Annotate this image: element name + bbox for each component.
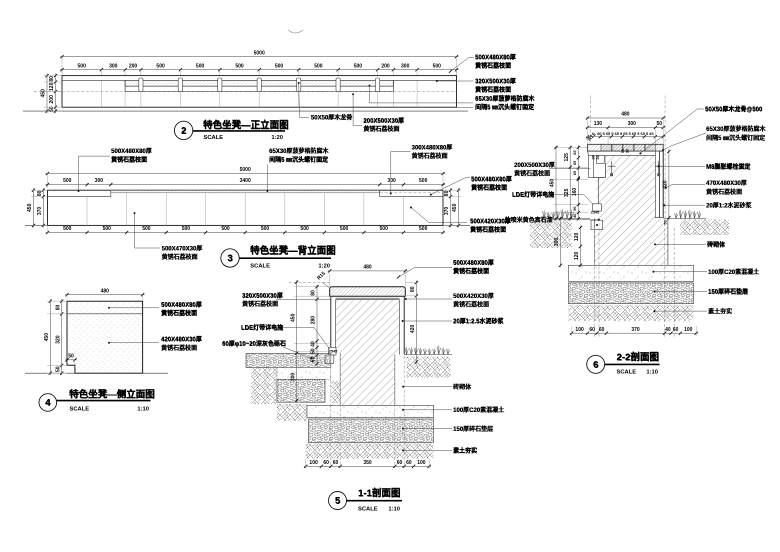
- svg-text:素土夯实: 素土夯实: [452, 447, 477, 455]
- svg-text:1-1剖面图: 1-1剖面图: [358, 488, 400, 500]
- svg-text:150厚碎石垫层: 150厚碎石垫层: [708, 288, 748, 296]
- svg-text:500X480X80厚: 500X480X80厚: [475, 54, 516, 62]
- svg-text:500X480X80厚: 500X480X80厚: [111, 147, 152, 155]
- svg-text:160: 160: [572, 188, 578, 197]
- svg-text:470X480X30厚: 470X480X30厚: [706, 179, 747, 187]
- svg-text:2545: 2545: [591, 210, 600, 215]
- svg-text:80 5 65 5 65 5 65 5 65 5 65 5: 80 5 65 5 65 5 65 5 65 5 65 5 45: [597, 131, 654, 136]
- svg-text:SCALE: SCALE: [358, 506, 378, 512]
- svg-text:500X420X30厚: 500X420X30厚: [453, 292, 494, 300]
- svg-text:200: 200: [129, 63, 138, 69]
- svg-text:80: 80: [37, 190, 43, 196]
- svg-text:500: 500: [433, 63, 442, 69]
- svg-text:特色坐凳—背立面图: 特色坐凳—背立面图: [250, 245, 336, 257]
- svg-text:1:10: 1:10: [388, 506, 400, 512]
- svg-text:50: 50: [55, 366, 61, 372]
- svg-text:100厚C20素混凝土: 100厚C20素混凝土: [708, 268, 759, 276]
- svg-text:1:10: 1:10: [646, 370, 658, 376]
- svg-text:300: 300: [109, 63, 118, 69]
- svg-text:40: 40: [572, 214, 577, 218]
- svg-text:500X470X30厚: 500X470X30厚: [162, 245, 203, 253]
- svg-text:350: 350: [363, 460, 372, 466]
- svg-text:320X500X30厚: 320X500X30厚: [242, 292, 283, 300]
- svg-text:500: 500: [314, 63, 323, 69]
- svg-text:450: 450: [27, 203, 33, 212]
- svg-text:SCALE: SCALE: [70, 406, 90, 412]
- svg-text:100: 100: [575, 327, 584, 333]
- svg-text:60: 60: [323, 460, 329, 466]
- svg-text:SCALE: SCALE: [250, 263, 270, 269]
- svg-text:间隔5 ㎜沉头螺钉固定: 间隔5 ㎜沉头螺钉固定: [475, 104, 534, 112]
- svg-text:65X30厚菠萝格防腐木: 65X30厚菠萝格防腐木: [475, 95, 535, 103]
- svg-text:320X500X30厚: 320X500X30厚: [475, 78, 516, 86]
- svg-text:20厚1:2.5水泥砂浆: 20厚1:2.5水泥砂浆: [453, 317, 504, 325]
- svg-text:500: 500: [419, 178, 428, 184]
- svg-text:50: 50: [311, 348, 317, 354]
- svg-text:500: 500: [419, 226, 428, 232]
- svg-text:130: 130: [594, 121, 603, 127]
- svg-text:1:10: 1:10: [137, 406, 149, 412]
- svg-text:500: 500: [156, 63, 165, 69]
- svg-text:450: 450: [44, 333, 50, 342]
- svg-text:黄锈石荔枝面: 黄锈石荔枝面: [161, 344, 197, 352]
- svg-text:外喷米黄色真石漆: 外喷米黄色真石漆: [504, 216, 553, 224]
- svg-text:50X50厚木龙骨: 50X50厚木龙骨: [311, 114, 352, 122]
- svg-text:500: 500: [275, 63, 284, 69]
- svg-text:480: 480: [363, 265, 372, 271]
- svg-text:黄锈石荔枝面: 黄锈石荔枝面: [453, 301, 489, 309]
- svg-text:325: 325: [564, 188, 570, 197]
- svg-text:黄锈石荔枝面: 黄锈石荔枝面: [475, 86, 511, 94]
- svg-text:200: 200: [49, 95, 55, 104]
- svg-text:特色坐凳—侧立面图: 特色坐凳—侧立面图: [70, 389, 156, 401]
- svg-text:LDE灯带详电施: LDE灯带详电施: [512, 191, 554, 199]
- svg-text:450: 450: [290, 313, 296, 322]
- svg-text:4: 4: [46, 398, 52, 409]
- svg-text:500: 500: [103, 226, 112, 232]
- svg-text:60: 60: [311, 356, 317, 362]
- svg-text:5000: 5000: [240, 167, 251, 173]
- svg-text:500: 500: [78, 63, 87, 69]
- svg-text:500: 500: [340, 226, 349, 232]
- svg-text:5000: 5000: [254, 50, 265, 56]
- svg-text:黄锈石荔枝面: 黄锈石荔枝面: [364, 125, 400, 133]
- svg-text:60: 60: [406, 460, 412, 466]
- svg-text:500: 500: [354, 63, 363, 69]
- svg-text:500: 500: [300, 226, 309, 232]
- svg-text:450: 450: [452, 203, 458, 212]
- svg-text:125: 125: [564, 153, 570, 162]
- svg-text:500X480X80厚: 500X480X80厚: [453, 259, 494, 267]
- svg-text:120: 120: [49, 82, 55, 91]
- svg-text:30: 30: [625, 149, 630, 153]
- svg-text:M8膨胀螺栓固定: M8膨胀螺栓固定: [706, 163, 750, 171]
- svg-text:50: 50: [572, 206, 577, 210]
- svg-text:黄锈石荔枝面: 黄锈石荔枝面: [475, 62, 511, 70]
- svg-text:3400: 3400: [240, 178, 251, 184]
- svg-text:50X50厚木龙骨@500: 50X50厚木龙骨@500: [705, 106, 763, 114]
- svg-text:黄锈石荔枝面: 黄锈石荔枝面: [242, 300, 278, 308]
- svg-text:100: 100: [417, 460, 426, 466]
- svg-text:500: 500: [182, 226, 191, 232]
- svg-text:65X30厚菠萝格防腐木: 65X30厚菠萝格防腐木: [706, 125, 766, 133]
- svg-text:300: 300: [95, 178, 104, 184]
- svg-text:20厚1:2水泥砂浆: 20厚1:2水泥砂浆: [706, 202, 752, 210]
- svg-text:300X480X80厚: 300X480X80厚: [412, 144, 453, 152]
- svg-text:480: 480: [101, 288, 110, 294]
- svg-text:100厚C20素混凝土: 100厚C20素混凝土: [453, 406, 504, 414]
- svg-text:480: 480: [621, 112, 630, 118]
- svg-text:60: 60: [589, 327, 595, 333]
- svg-text:500: 500: [63, 226, 72, 232]
- svg-text:砖砌体: 砖砌体: [707, 241, 726, 249]
- svg-text:370: 370: [444, 207, 450, 216]
- svg-text:100: 100: [684, 327, 693, 333]
- svg-text:450: 450: [41, 89, 47, 98]
- svg-text:120: 120: [574, 233, 580, 242]
- svg-text:60: 60: [397, 460, 403, 466]
- svg-text:SCALE: SCALE: [617, 370, 637, 376]
- svg-text:500X480X80厚: 500X480X80厚: [161, 301, 202, 309]
- svg-text:50: 50: [595, 155, 600, 159]
- svg-text:5: 5: [335, 496, 341, 507]
- svg-text:60: 60: [599, 327, 605, 333]
- svg-text:200X500X30厚: 200X500X30厚: [364, 117, 405, 125]
- svg-text:420: 420: [410, 325, 416, 334]
- svg-text:黄锈石荔枝面: 黄锈石荔枝面: [162, 253, 198, 261]
- svg-text:80: 80: [55, 305, 61, 311]
- svg-text:65X30厚菠萝格防腐木: 65X30厚菠萝格防腐木: [269, 147, 329, 155]
- svg-text:黄锈石荔枝面: 黄锈石荔枝面: [706, 188, 742, 196]
- svg-text:黄锈石荔枝面: 黄锈石荔枝面: [471, 184, 507, 192]
- svg-text:300: 300: [401, 63, 410, 69]
- svg-text:300: 300: [290, 373, 296, 382]
- svg-text:黄锈石荔枝面: 黄锈石荔枝面: [111, 156, 147, 164]
- svg-text:420X480X30厚: 420X480X30厚: [161, 335, 202, 343]
- svg-text:450: 450: [550, 179, 556, 188]
- svg-text:200: 200: [381, 63, 390, 69]
- svg-text:3: 3: [228, 254, 233, 265]
- svg-text:500: 500: [235, 63, 244, 69]
- svg-text:砖砌体: 砖砌体: [453, 383, 472, 391]
- svg-text:6: 6: [594, 360, 599, 371]
- svg-text:500: 500: [142, 226, 151, 232]
- svg-text:500: 500: [380, 226, 389, 232]
- svg-text:40: 40: [311, 341, 317, 347]
- svg-text:100: 100: [309, 460, 318, 466]
- svg-text:50: 50: [663, 220, 668, 224]
- svg-text:80: 80: [444, 190, 450, 196]
- svg-text:500: 500: [196, 63, 205, 69]
- svg-text:SCALE: SCALE: [204, 135, 224, 141]
- svg-text:黄锈石荔枝面: 黄锈石荔枝面: [453, 267, 489, 275]
- svg-text:80: 80: [311, 290, 317, 296]
- svg-text:120: 120: [574, 252, 580, 261]
- svg-text:黄锈石荔枝面: 黄锈石荔枝面: [412, 152, 448, 160]
- svg-text:280: 280: [311, 316, 317, 325]
- svg-text:50: 50: [68, 353, 74, 359]
- svg-text:间隔5 ㎜沉头螺钉固定: 间隔5 ㎜沉头螺钉固定: [269, 156, 328, 164]
- svg-text:300: 300: [628, 121, 637, 127]
- svg-text:40: 40: [665, 327, 671, 333]
- svg-text:200X500X30厚: 200X500X30厚: [514, 161, 555, 169]
- svg-text:60: 60: [333, 460, 339, 466]
- svg-text:间隔5 ㎜沉头螺钉固定: 间隔5 ㎜沉头螺钉固定: [706, 134, 765, 142]
- svg-text:LDE灯带详电施: LDE灯带详电施: [241, 324, 283, 332]
- svg-text:黄锈石荔枝面: 黄锈石荔枝面: [514, 170, 550, 178]
- svg-text:1:20: 1:20: [271, 135, 283, 141]
- svg-text:320: 320: [55, 335, 61, 344]
- svg-text:2: 2: [181, 126, 186, 137]
- svg-text:80: 80: [410, 286, 416, 292]
- svg-text:150厚碎石垫层: 150厚碎石垫层: [453, 425, 493, 433]
- svg-text:500: 500: [221, 226, 230, 232]
- svg-text:370: 370: [37, 207, 43, 216]
- svg-text:500: 500: [63, 178, 72, 184]
- svg-text:素土夯实: 素土夯实: [707, 308, 732, 316]
- svg-text:60: 60: [673, 327, 679, 333]
- svg-text:500X480X80厚: 500X480X80厚: [471, 175, 512, 183]
- svg-text:370: 370: [631, 327, 640, 333]
- svg-text:500: 500: [261, 226, 270, 232]
- svg-text:80: 80: [49, 76, 55, 82]
- svg-text:50: 50: [657, 121, 663, 127]
- svg-text:300: 300: [554, 238, 560, 247]
- svg-text:黄锈石荔枝面: 黄锈石荔枝面: [161, 309, 197, 317]
- svg-text:1:20: 1:20: [318, 263, 330, 269]
- svg-text:黄锈石荔枝面: 黄锈石荔枝面: [470, 226, 506, 234]
- svg-text:特色坐凳—正立面图: 特色坐凳—正立面图: [203, 120, 289, 132]
- svg-text:60厚φ10~20深灰色砾石: 60厚φ10~20深灰色砾石: [222, 340, 286, 348]
- svg-text:2-2剖面图: 2-2剖面图: [617, 351, 659, 363]
- svg-text:300: 300: [387, 178, 396, 184]
